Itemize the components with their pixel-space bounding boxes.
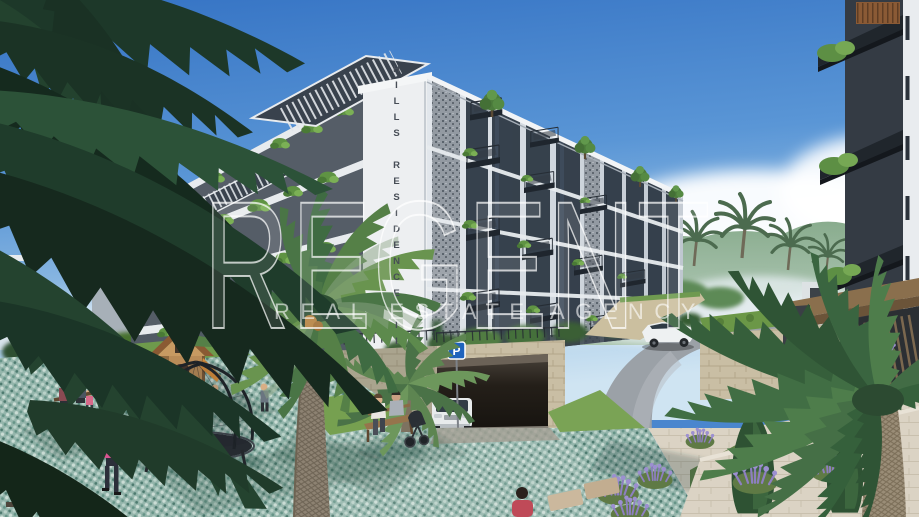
scene: P [0, 0, 919, 517]
render-image: P [0, 0, 919, 517]
